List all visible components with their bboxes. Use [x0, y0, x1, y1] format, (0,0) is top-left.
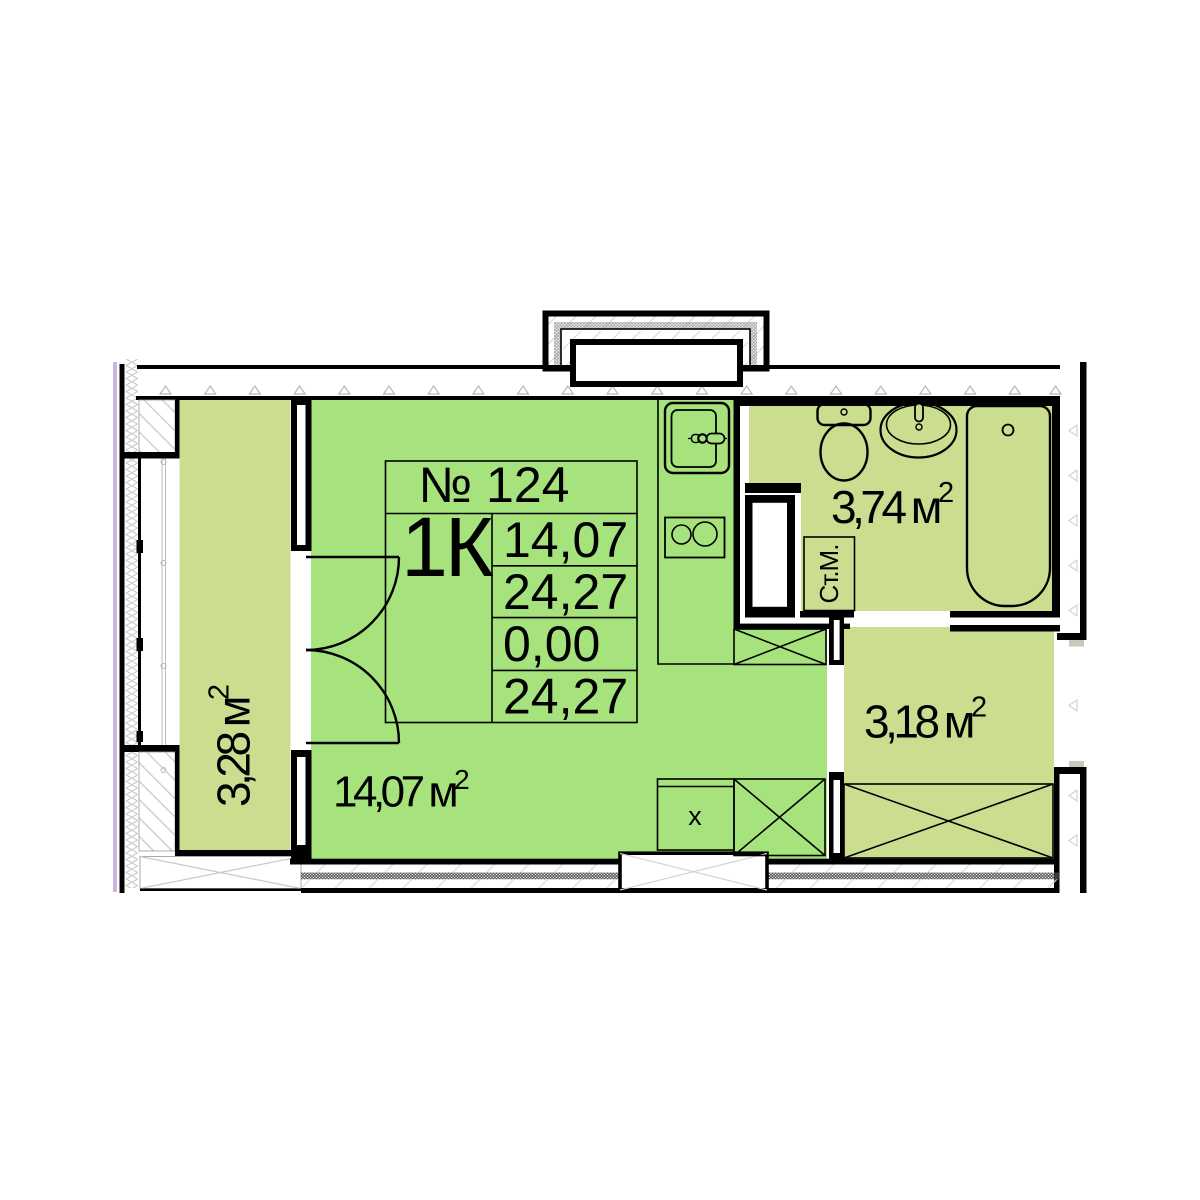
- svg-text:Ст.М.: Ст.М.: [814, 545, 844, 604]
- svg-text:3,74 м2: 3,74 м2: [831, 477, 953, 533]
- svg-text:14,07 м2: 14,07 м2: [333, 764, 469, 817]
- svg-text:3,18 м2: 3,18 м2: [864, 692, 986, 748]
- svg-text:24,27: 24,27: [503, 564, 628, 620]
- svg-text:1К: 1К: [401, 500, 494, 594]
- svg-text:14,07: 14,07: [503, 512, 628, 568]
- svg-text:0,00: 0,00: [503, 616, 600, 672]
- svg-text:x: x: [688, 801, 702, 831]
- svg-text:24,27: 24,27: [503, 669, 628, 725]
- svg-text:3,28 м2: 3,28 м2: [204, 685, 260, 807]
